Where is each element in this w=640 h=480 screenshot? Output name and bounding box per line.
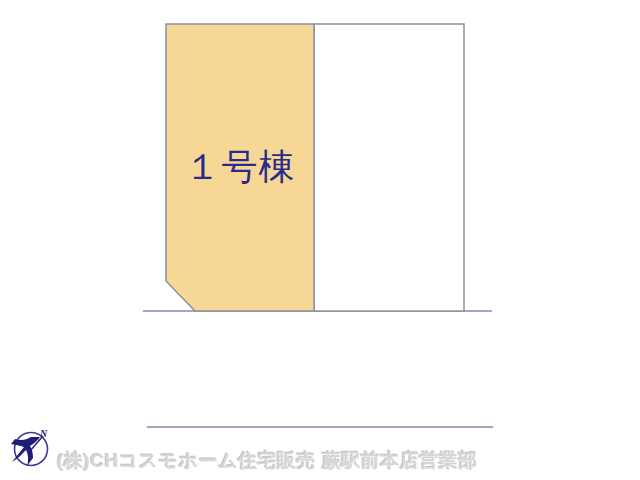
lot-diagram (0, 0, 640, 480)
lot-2-shape (314, 24, 464, 311)
lot-1-shape (166, 24, 314, 311)
plot-map: １号棟 N (株)CHコスモホーム住宅販売 蕨駅前本店営業部 (0, 0, 640, 480)
company-name: (株)CHコスモホーム住宅販売 蕨駅前本店営業部 (57, 448, 478, 474)
compass-north-label: N (39, 428, 48, 439)
compass-icon: N (10, 425, 54, 473)
